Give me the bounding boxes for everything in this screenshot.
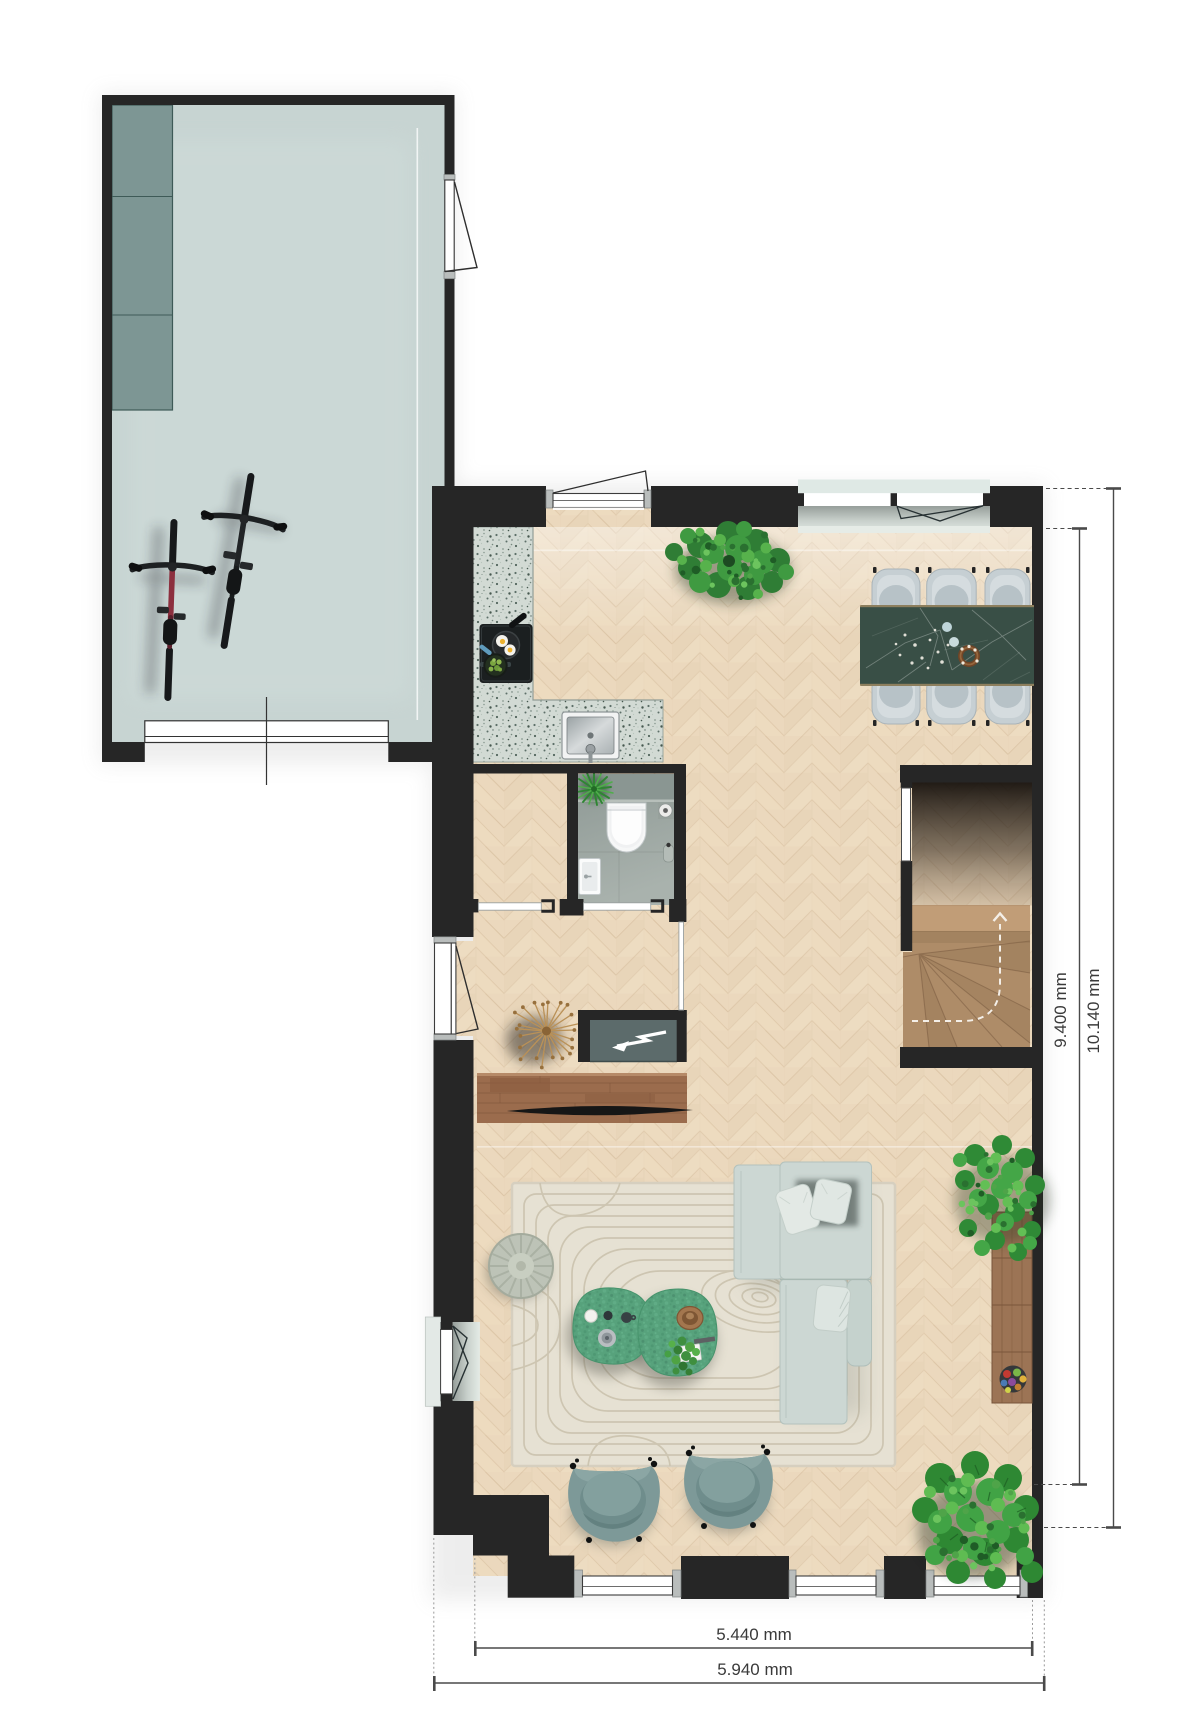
svg-text:5.440 mm: 5.440 mm <box>716 1625 792 1644</box>
svg-text:10.140 mm: 10.140 mm <box>1084 968 1103 1053</box>
svg-text:5.940 mm: 5.940 mm <box>717 1660 793 1679</box>
svg-text:9.400 mm: 9.400 mm <box>1051 972 1070 1048</box>
